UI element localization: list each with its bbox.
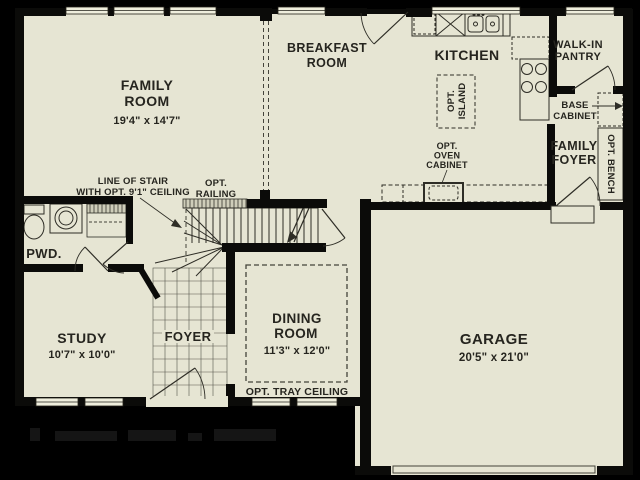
window <box>566 7 614 14</box>
window <box>297 398 337 406</box>
window <box>114 7 164 14</box>
pantry-label2: PANTRY <box>555 51 602 63</box>
line-of-stair-label: LINE OF STAIR <box>98 176 169 187</box>
pantry-label: WALK-IN <box>553 39 603 51</box>
window <box>66 7 108 14</box>
garage-label: GARAGE <box>460 331 528 348</box>
opt-oven-label2: OVEN <box>434 151 460 161</box>
foyer-label: FOYER <box>165 329 212 344</box>
opt-oven-label3: CABINET <box>426 160 468 170</box>
opt-bench-label: OPT. BENCH <box>605 134 616 194</box>
breakfast-room-label2: ROOM <box>307 56 348 70</box>
family-foyer-label: FAMILY <box>550 139 597 153</box>
study-dims: 10'7" x 10'0" <box>48 349 115 361</box>
opt-island-label2: ISLAND <box>457 83 468 120</box>
base-cabinet-label2: CABINET <box>553 111 597 122</box>
family-room-label: FAMILY <box>121 77 174 93</box>
window <box>85 398 123 406</box>
window <box>36 398 78 406</box>
window <box>170 7 216 14</box>
kitchen-label: KITCHEN <box>434 47 499 63</box>
opt-railing-label: OPT. <box>205 178 227 189</box>
base-cabinet-label: BASE <box>561 100 588 111</box>
family-room-label2: ROOM <box>124 93 169 109</box>
dining-room-label: DINING <box>272 311 322 326</box>
floor-plan: FAMILY ROOM 19'4" x 14'7" BREAKFAST ROOM… <box>0 0 640 480</box>
garage-step <box>551 206 594 223</box>
line-of-stair-label2: WITH OPT. 9'1" CEILING <box>76 187 190 198</box>
garage-dims: 20'5" x 21'0" <box>459 352 529 364</box>
window <box>432 7 520 14</box>
breakfast-room-label: BREAKFAST <box>287 41 367 55</box>
opt-oven-label: OPT. <box>437 141 458 151</box>
tray-ceiling-label: OPT. TRAY CEILING <box>246 386 349 398</box>
family-foyer-label2: FOYER <box>551 153 596 167</box>
opt-island-label: OPT. <box>446 90 457 112</box>
study-label: STUDY <box>57 330 107 346</box>
pwd-label: PWD. <box>26 246 62 261</box>
family-room-dims: 19'4" x 14'7" <box>113 115 180 127</box>
window <box>252 398 290 406</box>
dining-room-dims: 11'3" x 12'0" <box>264 345 331 357</box>
stair-railing <box>183 199 247 208</box>
floor-plan-canvas: FAMILY ROOM 19'4" x 14'7" BREAKFAST ROOM… <box>0 0 640 480</box>
dining-room-label2: ROOM <box>274 326 318 341</box>
closet-shelf <box>87 204 126 213</box>
front-door-opening <box>146 396 228 407</box>
opt-railing-label2: RAILING <box>196 189 236 200</box>
window <box>278 7 325 14</box>
garage-door <box>391 464 597 475</box>
